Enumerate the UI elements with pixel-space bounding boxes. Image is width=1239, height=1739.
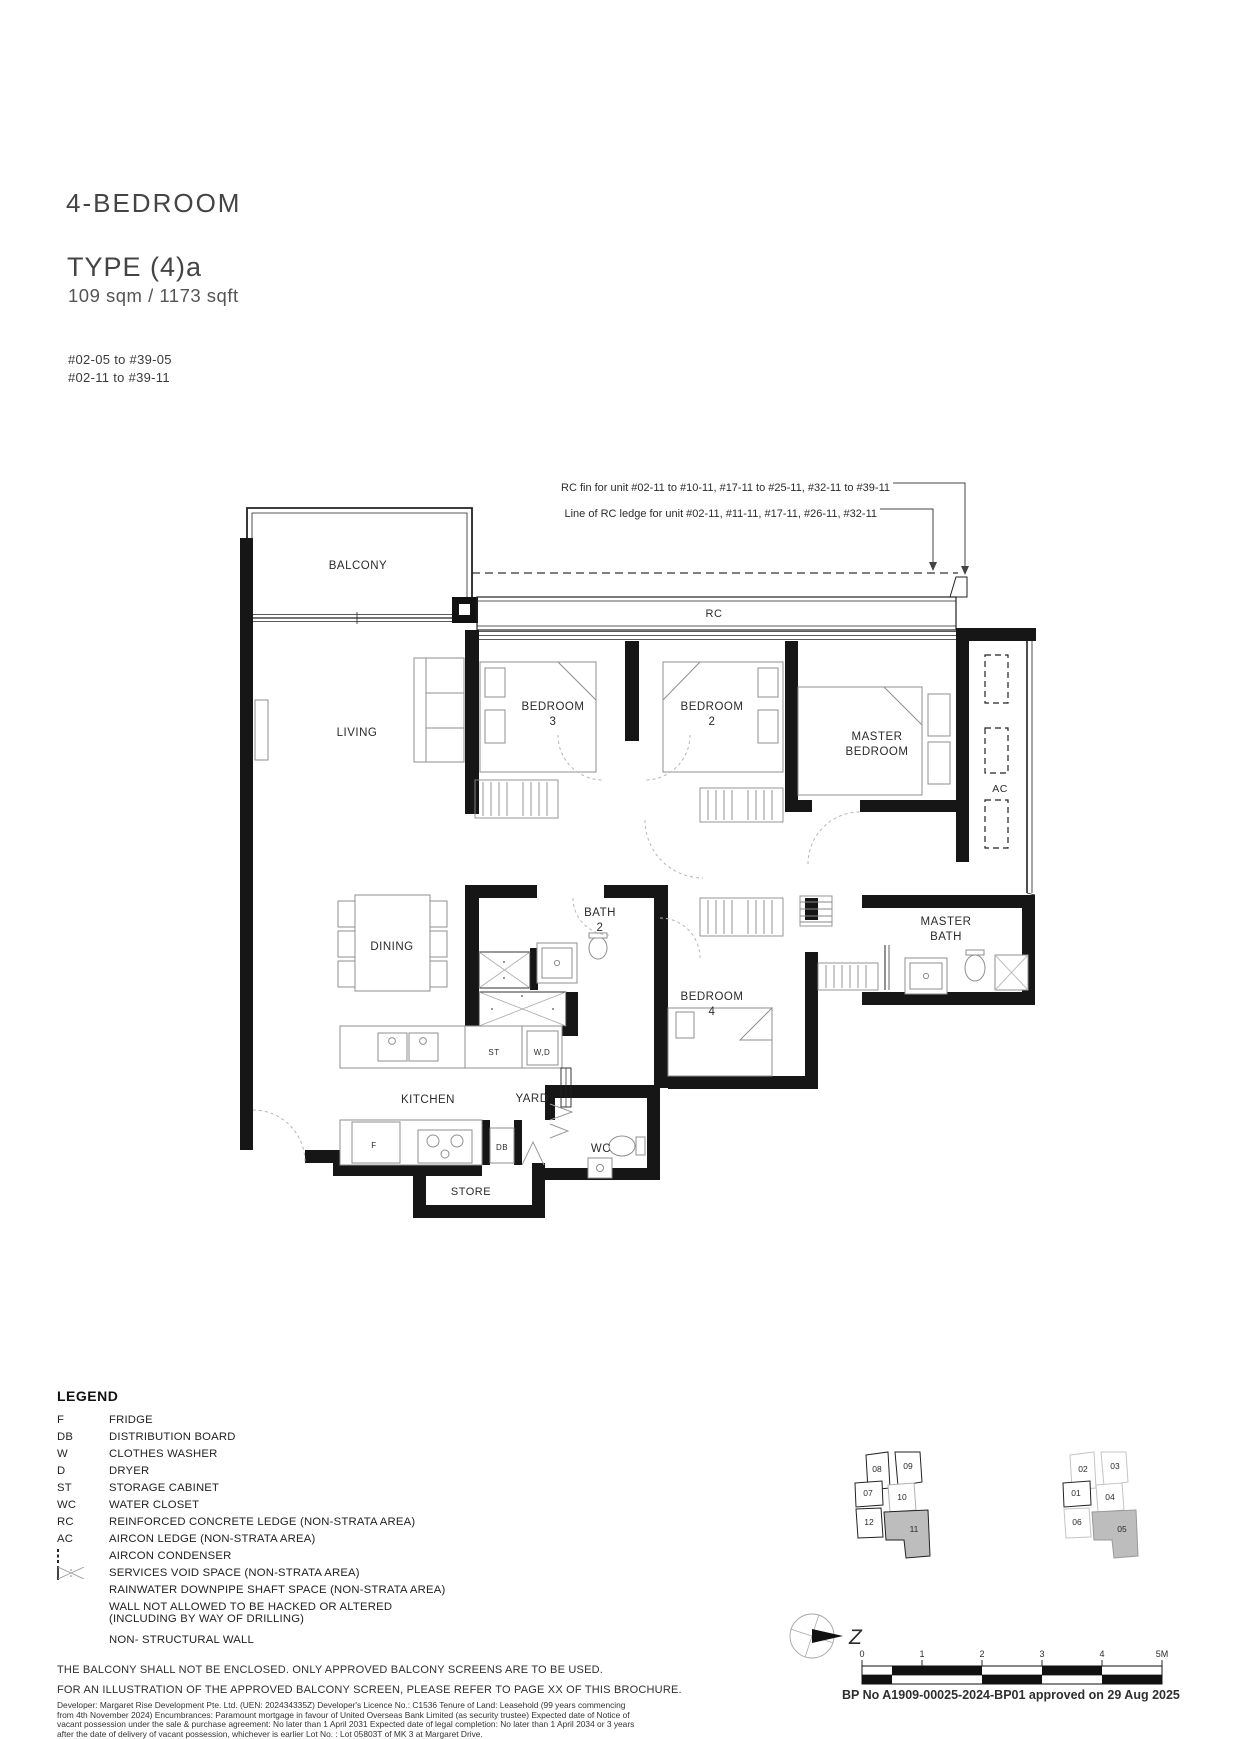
page-title: 4-BEDROOM xyxy=(66,188,241,219)
unit-type-label: TYPE (4)a xyxy=(67,252,202,283)
bp-approval: BP No A1909-00025-2024-BP01 approved on … xyxy=(842,1688,1180,1702)
north-compass-icon: Z xyxy=(784,1608,863,1663)
key-unit-07: 07 xyxy=(863,1488,873,1498)
annotation-leaders xyxy=(880,483,965,566)
scale-tick-4: 4 xyxy=(1099,1649,1104,1659)
room-labels: BALCONY LIVING RC BEDROOM 3 BEDROOM 2 MA… xyxy=(329,560,1008,1198)
ac-ledge-walls xyxy=(1027,641,1035,895)
leader-arrow-ledge xyxy=(929,562,937,571)
room-label-yard: YARD xyxy=(515,1093,548,1105)
legend-label-wall-line2: (INCLUDING BY WAY OF DRILLING) xyxy=(109,1613,304,1625)
room-label-bedroom2: BEDROOM xyxy=(681,701,744,713)
legend-label-storage: STORAGE CABINET xyxy=(109,1482,219,1494)
legend-label-rc: REINFORCED CONCRETE LEDGE (NON-STRATA AR… xyxy=(109,1516,415,1528)
annotation-rc-fin: RC fin for unit #02-11 to #10-11, #17-11… xyxy=(561,482,890,494)
scale-bar: 0 1 2 3 4 5M xyxy=(859,1649,1168,1684)
key-plan-right-highlighted-unit xyxy=(1092,1510,1138,1558)
key-unit-08: 08 xyxy=(872,1464,882,1474)
north-label: Z xyxy=(848,1626,863,1649)
fixture-label-wd: W,D xyxy=(534,1048,551,1057)
room-label-balcony: BALCONY xyxy=(329,560,387,572)
key-unit-09: 09 xyxy=(903,1461,913,1471)
room-label-wc: WC xyxy=(591,1143,611,1155)
legend-label-washer: CLOTHES WASHER xyxy=(109,1448,217,1460)
key-plan-right xyxy=(1063,1452,1138,1558)
floor-plan-svg: RC fin for unit #02-11 to #10-11, #17-11… xyxy=(230,425,1040,1225)
legend-label-aircon-condenser: AIRCON CONDENSER xyxy=(109,1550,231,1562)
key-unit-01: 01 xyxy=(1071,1488,1081,1498)
legend-abbr-f: F xyxy=(57,1414,109,1426)
room-label-dining: DINING xyxy=(370,941,413,953)
room-label-master-bedroom-2: BEDROOM xyxy=(846,746,909,758)
room-label-bedroom4-num: 4 xyxy=(709,1006,716,1018)
balcony-note-1: THE BALCONY SHALL NOT BE ENCLOSED. ONLY … xyxy=(57,1664,603,1676)
legend-label-dryer: DRYER xyxy=(109,1465,149,1477)
key-unit-02: 02 xyxy=(1078,1464,1088,1474)
legend-label-wall: WALL NOT ALLOWED TO BE HACKED OR ALTERED… xyxy=(109,1601,392,1625)
unit-range-1: #02-05 to #39-05 xyxy=(68,351,172,369)
room-label-bedroom3-num: 3 xyxy=(550,716,557,728)
legend-label-services-void: SERVICES VOID SPACE (NON-STRATA AREA) xyxy=(109,1567,360,1579)
scale-tick-0: 0 xyxy=(859,1649,864,1659)
key-unit-12: 12 xyxy=(864,1517,874,1527)
aircon-condensers xyxy=(985,655,1008,848)
brochure-page: 4-BEDROOM TYPE (4)a 109 sqm / 1173 sqft … xyxy=(0,0,1239,1739)
unit-range-2: #02-11 to #39-11 xyxy=(68,369,172,387)
room-label-master-bath-2: BATH xyxy=(930,931,962,943)
scale-tick-3: 3 xyxy=(1039,1649,1044,1659)
legend-abbr-ac: AC xyxy=(57,1533,109,1545)
legend-label-ac: AIRCON LEDGE (NON-STRATA AREA) xyxy=(109,1533,315,1545)
legend-label-db: DISTRIBUTION BOARD xyxy=(109,1431,236,1443)
key-plan-left-highlighted-unit xyxy=(884,1510,930,1558)
legend-heading: LEGEND xyxy=(57,1388,657,1404)
legend-label-wc: WATER CLOSET xyxy=(109,1499,199,1511)
legend-label-rainwater: RAINWATER DOWNPIPE SHAFT SPACE (NON-STRA… xyxy=(109,1584,445,1596)
key-unit-03: 03 xyxy=(1110,1461,1120,1471)
balcony-note-2: FOR AN ILLUSTRATION OF THE APPROVED BALC… xyxy=(57,1684,682,1696)
legend-label-non-structural: NON- STRUCTURAL WALL xyxy=(109,1634,254,1646)
developer-disclaimer: Developer: Margaret Rise Development Pte… xyxy=(57,1701,637,1739)
rc-fin xyxy=(950,577,967,597)
legend-abbr-rc: RC xyxy=(57,1516,109,1528)
legend: LEGEND FFRIDGE DBDISTRIBUTION BOARD WCLO… xyxy=(57,1388,657,1651)
scale-tick-2: 2 xyxy=(979,1649,984,1659)
key-unit-11: 11 xyxy=(910,1524,919,1534)
leader-arrow-fin xyxy=(961,566,969,575)
legend-label-fridge: FRIDGE xyxy=(109,1414,153,1426)
structural-walls xyxy=(240,538,1036,1218)
room-label-rc: RC xyxy=(706,608,723,620)
key-plan-left xyxy=(855,1452,930,1558)
room-label-bedroom2-num: 2 xyxy=(709,716,716,728)
room-label-store: STORE xyxy=(451,1186,491,1198)
room-label-bedroom4: BEDROOM xyxy=(681,991,744,1003)
room-label-bath2: BATH xyxy=(584,907,616,919)
legend-abbr-w: W xyxy=(57,1448,109,1460)
fixture-label-db: DB xyxy=(496,1143,508,1152)
legend-abbr-st: ST xyxy=(57,1482,109,1494)
legend-abbr-wc: WC xyxy=(57,1499,109,1511)
window-band xyxy=(479,632,956,640)
key-unit-04: 04 xyxy=(1105,1492,1115,1502)
key-unit-06: 06 xyxy=(1072,1517,1082,1527)
scale-tick-5m: 5M xyxy=(1156,1649,1169,1659)
fixture-label-st: ST xyxy=(488,1048,499,1057)
room-label-ac: AC xyxy=(992,783,1008,795)
unit-area-label: 109 sqm / 1173 sqft xyxy=(68,285,239,307)
rainwater-downpipe-inner xyxy=(459,604,470,615)
unit-ranges: #02-05 to #39-05 #02-11 to #39-11 xyxy=(68,351,172,387)
legend-label-wall-line1: WALL NOT ALLOWED TO BE HACKED OR ALTERED xyxy=(109,1601,392,1613)
scale-tick-1: 1 xyxy=(919,1649,924,1659)
room-label-master-bath: MASTER xyxy=(921,916,972,928)
key-plan-svg: 08 09 07 10 12 11 02 03 01 04 06 05 xyxy=(700,1420,1239,1720)
services-void-symbol xyxy=(57,1566,59,1580)
room-label-bath2-num: 2 xyxy=(597,922,604,934)
annotation-rc-ledge: Line of RC ledge for unit #02-11, #11-11… xyxy=(565,508,878,520)
aircon-condenser-symbol xyxy=(57,1549,59,1563)
key-unit-05: 05 xyxy=(1117,1524,1127,1534)
room-label-master-bedroom: MASTER xyxy=(852,731,903,743)
legend-abbr-d: D xyxy=(57,1465,109,1477)
key-unit-10: 10 xyxy=(897,1492,907,1502)
room-label-living: LIVING xyxy=(337,727,378,739)
room-label-bedroom3: BEDROOM xyxy=(522,701,585,713)
legend-abbr-db: DB xyxy=(57,1431,109,1443)
fixture-label-f: F xyxy=(371,1141,376,1150)
room-label-kitchen: KITCHEN xyxy=(401,1094,455,1106)
